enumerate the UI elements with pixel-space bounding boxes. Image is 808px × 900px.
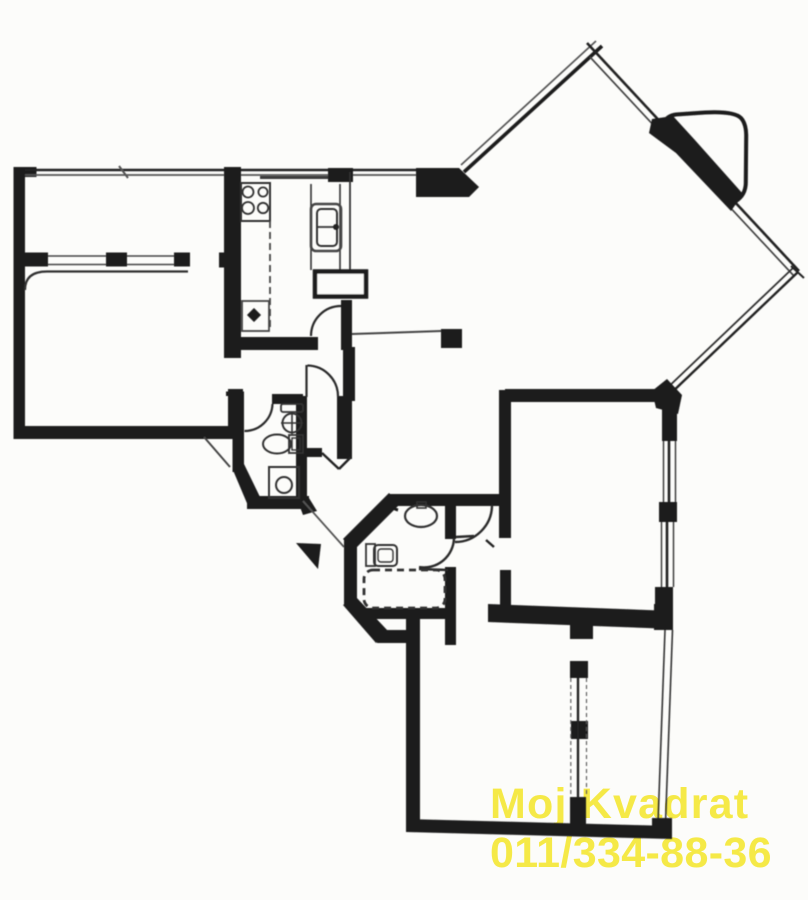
svg-text:Moj Kvadrat: Moj Kvadrat — [490, 780, 749, 828]
